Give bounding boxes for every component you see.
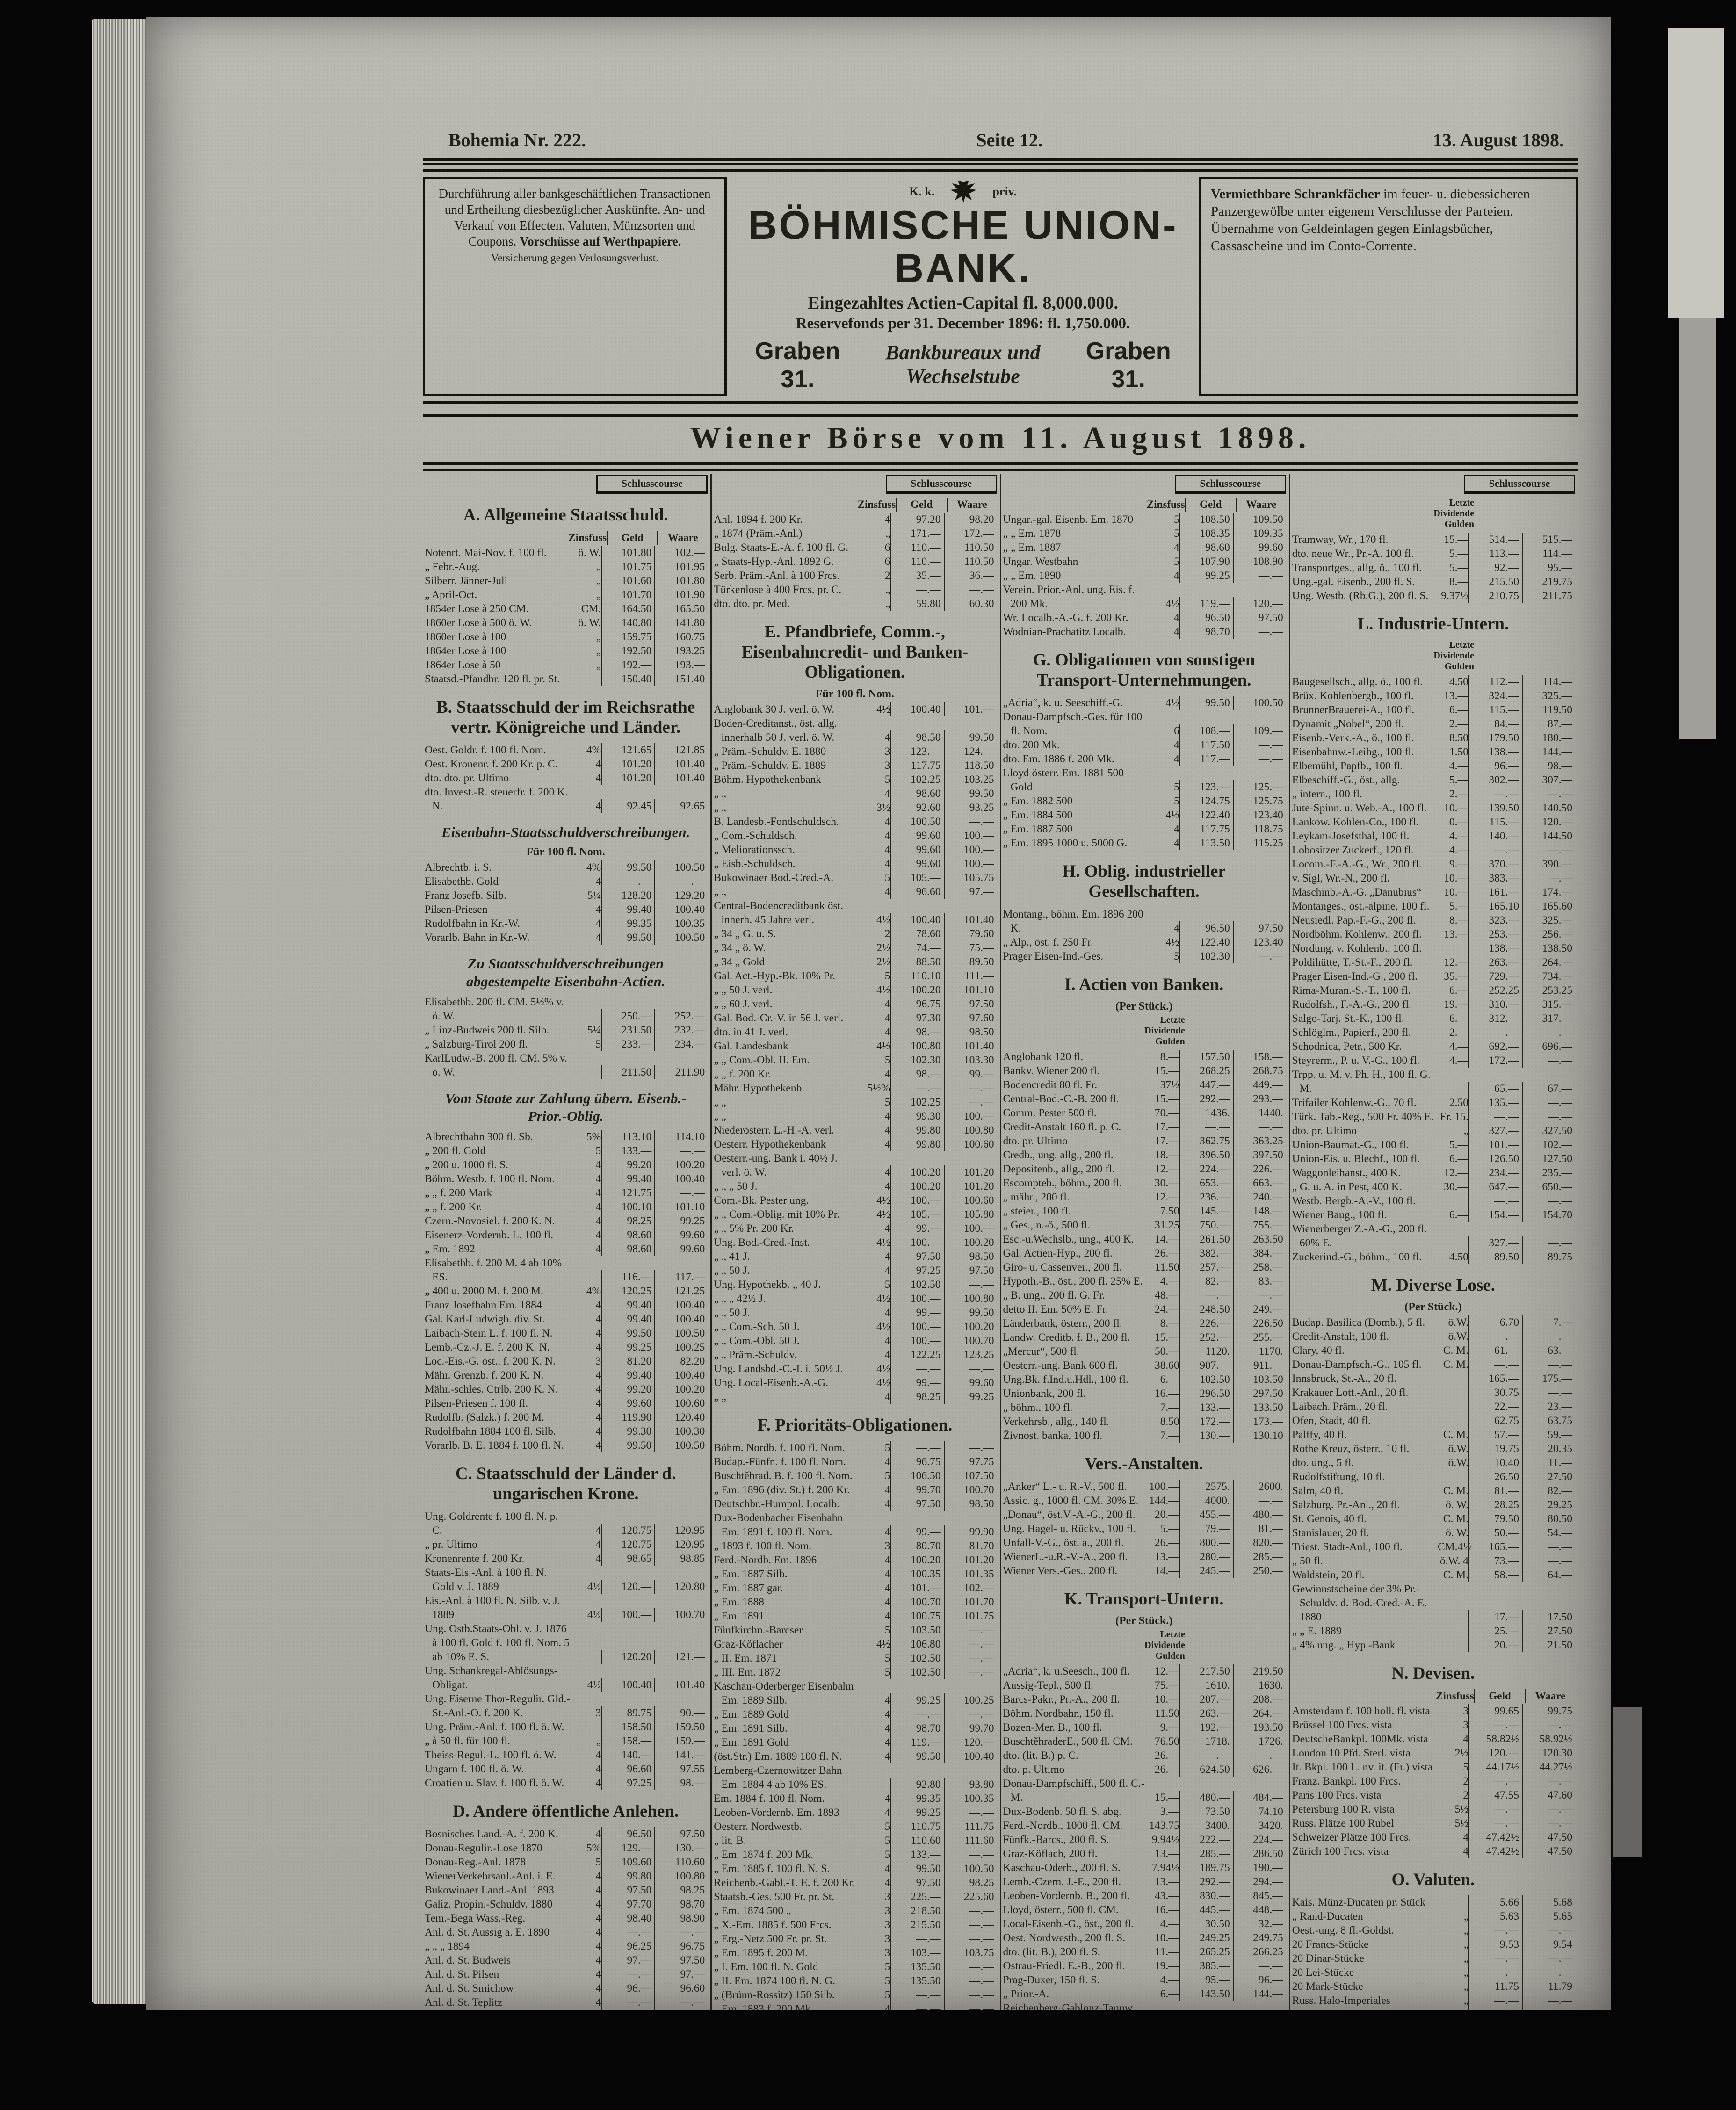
waare-value: 159.—: [654, 1734, 708, 1748]
interest-or-dividend: 5: [860, 1848, 890, 1862]
waare-value: —.—: [944, 1637, 997, 1651]
geld-value: 192.—: [1179, 1720, 1233, 1734]
interest-or-dividend: 4: [1149, 569, 1179, 583]
waare-value: 80.50: [1522, 1512, 1575, 1526]
waare-value: 54.—: [1522, 1526, 1575, 1540]
geld-value: 17.—: [1468, 1610, 1522, 1624]
security-name: Salgo-Tarj. St.-K., 100 fl.: [1299, 1012, 1438, 1026]
security-name: „ „ „ 1894: [431, 1939, 570, 1953]
waare-value: 158.—: [1233, 1050, 1286, 1064]
security-name: „ „ Com.-Oblig. mit 10% Pr.: [720, 1207, 859, 1221]
table-row: Triest499.50100.45: [424, 2009, 708, 2010]
bank-capital: Eingezahltes Actien-Capital fl. 8,000.00…: [739, 293, 1187, 313]
interest-or-dividend: CM.4½: [1438, 1540, 1468, 1554]
geld-value: 97.50: [890, 1250, 944, 1264]
table-row: Anl. d. St. Aussig a. E. 18904—.——.—: [424, 1925, 708, 1939]
security-name: Živnost. banka, 100 fl.: [1010, 1429, 1149, 1443]
table-row: Esc.-u.Wechslb., ung., 400 K.14.—261.502…: [1002, 1232, 1286, 1246]
waare-value: 173.—: [1233, 1415, 1286, 1429]
interest-or-dividend: 4½: [860, 1292, 890, 1306]
table-row: Lemb.-Czern. J.-E., 200 fl.13.—292.—294.…: [1002, 1875, 1286, 1889]
security-name: „ Em. 1883 f. 200 Mk.: [720, 2002, 859, 2010]
waare-value: 101.90: [654, 588, 708, 602]
table-row: Laibach-Stein L. f. 100 fl. N.499.50100.…: [424, 1326, 708, 1340]
waare-value: 100.35: [654, 917, 708, 931]
waare-value: 130.10: [1233, 1429, 1286, 1443]
security-name: Staatsb.-Ges. 500 Fr. pr. St.: [720, 1890, 859, 1904]
waare-value: 63.75: [1522, 1414, 1575, 1428]
waare-value: —.—: [1233, 569, 1286, 583]
security-name: Oesterr.-ung. Bank 600 fl.: [1010, 1358, 1149, 1373]
security-name: „ „ f. 200 Kr.: [431, 1200, 570, 1214]
security-name: „ „: [720, 1390, 859, 1404]
geld-value: 250.—: [601, 1009, 654, 1023]
waare-value: 363.25: [1233, 1134, 1286, 1148]
waare-value: 325.—: [1522, 913, 1575, 927]
security-name: Bulg. Staats-E.-A. f. 100 fl. G.: [720, 541, 859, 555]
waare-value: 92.65: [654, 799, 708, 813]
security-name: Palffy, 40 fl.: [1299, 1428, 1438, 1442]
table-row: „ 1893 f. 100 fl. Nom.380.7081.70: [713, 1539, 997, 1553]
interest-or-dividend: 5: [860, 1441, 890, 1455]
waare-value: 117.—: [654, 1270, 708, 1284]
priv-label: priv.: [992, 185, 1016, 199]
interest-or-dividend: 2.—: [1438, 717, 1468, 731]
waare-value: 96.—: [1233, 1973, 1286, 1987]
table-row: St. Genois, 40 fl.C. M.79.5080.50: [1291, 1512, 1575, 1526]
waare-value: 99.60: [654, 1228, 708, 1242]
geld-value: 102.30: [890, 1053, 944, 1067]
table-row: Transportges., allg. ö., 100 fl.5.—92.—9…: [1291, 561, 1575, 575]
security-name: „ G. u. A. in Pest, 400 K.: [1299, 1180, 1438, 1194]
geld-value: —.—: [1468, 1951, 1522, 1965]
waare-value: —.—: [944, 1665, 997, 1679]
table-row: Petersburg 100 R. vista5½—.——.—: [1291, 1802, 1575, 1816]
table-row: Bozen-Mer. B., 100 fl.9.—192.—193.50: [1002, 1720, 1286, 1734]
waare-value: 99.75: [1522, 1704, 1575, 1718]
waare-value: 21.50: [1522, 1638, 1575, 1652]
waare-value: 100.50: [654, 860, 708, 874]
waare-value: 119.50: [1522, 703, 1575, 717]
table-row: dto. Em. 1886 f. 200 Mk.4117.——.—: [1002, 752, 1286, 766]
interest-or-dividend: 3: [1438, 1718, 1468, 1732]
waare-value: 100.60: [944, 1137, 997, 1151]
interest-or-dividend: 2½: [860, 941, 890, 955]
waare-value: —.—: [1522, 1965, 1575, 1980]
table-row: KarlLudw.-B. 200 fl. CM. 5% v. ö. W.211.…: [424, 1051, 708, 1079]
interest-or-dividend: 5%: [570, 1841, 601, 1855]
waare-value: 174.—: [1522, 885, 1575, 899]
table-row: Lloyd, österr., 500 fl. CM.16.—445.—448.…: [1002, 1903, 1286, 1917]
interest-or-dividend: 3: [1438, 1704, 1468, 1718]
waare-value: 101.20: [944, 1553, 997, 1567]
interest-or-dividend: 13.—: [1438, 689, 1468, 703]
waare-value: —.—: [1522, 1236, 1575, 1250]
security-name: Oest. Goldr. f. 100 fl. Nom.: [431, 743, 570, 757]
waare-value: 255.—: [1233, 1330, 1286, 1344]
geld-value: 101.20: [601, 771, 654, 785]
security-name: „ Em. 1891: [720, 1609, 859, 1623]
waare-value: 100.40: [654, 903, 708, 917]
geld-value: 211.50: [601, 1065, 654, 1079]
security-name: „Donau“, öst.V.-A.-G., 200 fl.: [1010, 1508, 1149, 1522]
interest-or-dividend: 4: [1149, 822, 1179, 836]
waare-value: 165.60: [1522, 899, 1575, 913]
waare-value: 258.—: [1233, 1260, 1286, 1274]
interest-or-dividend: 4: [570, 1200, 601, 1214]
table-row: Amsterdam f. 100 holl. fl. vista399.6599…: [1291, 1704, 1575, 1718]
geld-value: 78.60: [890, 927, 944, 941]
security-name: „ pr. Ultimo: [431, 1538, 570, 1552]
waare-value: 97.50: [944, 1264, 997, 1278]
waare-value: 47.50: [1522, 1844, 1575, 1858]
geld-value: 96.60: [890, 885, 944, 899]
table-row: Anglobank 30 J. verl. ö. W.4½100.40101.—: [713, 702, 997, 716]
security-name: 20 Dinar-Stücke: [1299, 1951, 1438, 1965]
geld-value: —.—: [1179, 1120, 1233, 1134]
security-name: It. Bkpl. 100 L. nv. it. (Fr.) vista: [1299, 1760, 1438, 1774]
schlusscourse-header-row: Schlusscourse: [424, 475, 708, 494]
table-row: „ Em. 1874 500 „3218.50—.—: [713, 1904, 997, 1918]
security-name: dto. pr. Ultimo: [1299, 1124, 1438, 1138]
security-name: Kais. Münz-Ducaten pr. Stück: [1299, 1895, 1438, 1909]
section-heading: O. Valuten.: [1294, 1870, 1572, 1890]
waare-value: 219.75: [1522, 575, 1575, 589]
security-name: Eisenb.-Verk.-A., ö., 100 fl.: [1299, 731, 1438, 745]
table-row: „ Em. 1887 gar.4101.—102.—: [713, 1581, 997, 1595]
table-row: Prager Eisen-Ind.-G., 200 fl.35.—729.—73…: [1291, 969, 1575, 983]
geld-value: 245.—: [1179, 1564, 1233, 1578]
security-name: Wr. Localb.-A.-G. f. 200 Kr.: [1010, 611, 1149, 625]
geld-value: 312.—: [1468, 1012, 1522, 1026]
table-row: Elbemühl, Papfb., 100 fl.4.—96.—98.—: [1291, 759, 1575, 773]
waare-value: —.—: [654, 1144, 708, 1158]
security-name: „ „ E. 1889: [1299, 1624, 1438, 1638]
security-name: Ostrau-Friedl. E.-B., 200 fl.: [1010, 1959, 1149, 1973]
geld-value: 126.50: [1468, 1152, 1522, 1166]
table-row: „ 200 fl. Gold5133.——.—: [424, 1144, 708, 1158]
interest-or-dividend: 4½: [860, 1207, 890, 1221]
table-row: Anglobank 120 fl.8.—157.50158.—: [1002, 1050, 1286, 1064]
waare-value: 99.25: [654, 1214, 708, 1228]
section-heading: C. Staatsschuld der Länder d. ungarische…: [427, 1464, 705, 1504]
geld-value: 120.—: [601, 1580, 654, 1594]
geld-value: 222.—: [1179, 1833, 1233, 1847]
interest-or-dividend: „: [570, 574, 601, 588]
table-row: Wiener Baug., 100 fl.6.—154.—154.70: [1291, 1208, 1575, 1222]
waare-value: 151.40: [654, 672, 708, 686]
waare-value: 755.—: [1233, 1218, 1286, 1232]
geld-value: 248.50: [1179, 1302, 1233, 1316]
table-row: Rima-Muran.-S.-T., 100 fl.6.—252.25253.2…: [1291, 983, 1575, 997]
section-heading: K. Transport-Untern.: [1005, 1589, 1283, 1609]
waare-value: 101.40: [944, 913, 997, 927]
security-name: Lloyd, österr., 500 fl. CM.: [1010, 1903, 1149, 1917]
geld-value: 44.17½: [1468, 1760, 1522, 1774]
table-row: „ (Brünn-Rossitz) 150 Silb.5—.——.—: [713, 1988, 997, 2002]
security-name: Central-Bodencreditbank öst. innerh. 45 …: [720, 899, 859, 927]
waare-value: 384.—: [1233, 1246, 1286, 1260]
security-name: Eisenerz-Vordernb. L. 100 fl.: [431, 1228, 570, 1242]
geld-value: 653.—: [1179, 1176, 1233, 1190]
table-row: Verein. Prior.-Anl. ung. Eis. f. 200 Mk.…: [1002, 583, 1286, 611]
table-row: Nordung. v. Kohlenb., 100 fl.138.—138.50: [1291, 941, 1575, 955]
table-row: Salzburg. Pr.-Anl., 20 fl.ö. W.28.2529.2…: [1291, 1498, 1575, 1512]
security-name: Innsbruck, St.-A., 20 fl.: [1299, 1372, 1438, 1386]
geld-value: 98.60: [1179, 541, 1233, 555]
table-row: „ Ges., n.-ö., 500 fl.31.25750.—755.—: [1002, 1218, 1286, 1232]
geld-value: 79.50: [1468, 1512, 1522, 1526]
table-row: „ „ Com.-Obl. II. Em.5102.30103.30: [713, 1053, 997, 1067]
security-name: Bukowinaer Bod.-Cred.-A.: [720, 871, 859, 885]
table-row: Fünfkirchn.-Barcser5103.50—.—: [713, 1623, 997, 1637]
interest-or-dividend: „: [1438, 2008, 1468, 2010]
security-name: Assic. g., 1000 fl. CM. 30% E.: [1010, 1494, 1149, 1508]
bank-name: BÖHMISCHE UNION-BANK.: [739, 204, 1187, 290]
security-name: „ „ „ 42½ J.: [720, 1292, 859, 1306]
security-name: „ mähr., 200 fl.: [1010, 1190, 1149, 1204]
interest-or-dividend: „: [570, 560, 601, 574]
waare-value: 120.—: [1522, 815, 1575, 829]
table-row: dto. Invest.-R. steuerfr. f. 200 K. N.49…: [424, 785, 708, 813]
interest-or-dividend: 4: [570, 1925, 601, 1939]
security-name: Graz-Köflach, 200 fl.: [1010, 1847, 1149, 1861]
security-name: Ungar. Westbahn: [1010, 555, 1149, 569]
table-row: dto. in 41 J. verl.498.—98.50: [713, 1025, 997, 1039]
geld-value: 99.20: [601, 1158, 654, 1172]
table-row: 20 Francs-Stücke„9.539.54: [1291, 1937, 1575, 1951]
security-name: Prager Eisen-Ind.-G., 200 fl.: [1299, 969, 1438, 983]
security-name: „ „: [720, 787, 859, 801]
table-row: Waldstein, 20 fl.C. M.58.—64.—: [1291, 1568, 1575, 1582]
waare-value: 114.—: [1522, 675, 1575, 689]
interest-or-dividend: 4: [570, 1410, 601, 1424]
security-name: Reichenberg-Gablonz-Tannw. Eisenb.-Prior…: [1010, 2001, 1149, 2010]
interest-or-dividend: 5: [860, 1820, 890, 1834]
waare-value: 144.50: [1522, 829, 1575, 843]
interest-or-dividend: C. M.: [1438, 1568, 1468, 1582]
geld-value: 99.50: [601, 931, 654, 945]
waare-value: 101.40: [654, 771, 708, 785]
security-name: Ferd.-Nordb. Em. 1896: [720, 1553, 859, 1567]
interest-or-dividend: 5: [860, 1278, 890, 1292]
waare-value: 390.—: [1522, 857, 1575, 871]
waare-value: 110.50: [944, 555, 997, 569]
geld-value: 92.80: [890, 1778, 944, 1792]
security-name: „ 34 „ G. u. S.: [720, 927, 859, 941]
geld-value: 154.—: [1468, 1208, 1522, 1222]
security-name: „ Com.-Schuldsch.: [720, 829, 859, 843]
ad-center-box: K. k. priv. BÖHMISCHE UNION-BANK. Eingez…: [734, 177, 1192, 396]
table-row: Locom.-F.-A.-G., Wr., 200 fl.9.—370.—390…: [1291, 857, 1575, 871]
security-name: Gal. Actien-Hyp., 200 fl.: [1010, 1246, 1149, 1260]
geld-value: —.—: [1468, 843, 1522, 857]
interest-or-dividend: 4: [1438, 1844, 1468, 1858]
security-name: Wiener Baug., 100 fl.: [1299, 1208, 1438, 1222]
waare-value: 820.—: [1233, 1536, 1286, 1550]
interest-or-dividend: 5: [570, 1037, 601, 1051]
security-name: Bukowinaer Land.-Anl. 1893: [431, 1883, 570, 1897]
table-row: Donau-Dampfsch.-Ges. für 100 fl. Nom.610…: [1002, 710, 1286, 738]
security-name: Waggonleihanst., 400 K.: [1299, 1166, 1438, 1180]
table-row: Aussig-Tepl., 500 fl.75.—1610.1630.: [1002, 1678, 1286, 1692]
security-name: Rudolfsh., F.-A.-G., 200 fl.: [1299, 997, 1438, 1012]
subsection-heading: Vom Staate zur Zahlung übern. Eisenb.-Pr…: [426, 1090, 706, 1125]
waare-value: 101.35: [944, 1567, 997, 1581]
security-name: Verein. Prior.-Anl. ung. Eis. f. 200 Mk.: [1010, 583, 1149, 611]
table-row: Ungar. Westbahn5107.90108.90: [1002, 555, 1286, 569]
geld-value: 117.75: [1179, 822, 1233, 836]
table-row: Innsbruck, St.-A., 20 fl.165.—175.—: [1291, 1372, 1575, 1386]
table-row: Eisenerz-Vordernb. L. 100 fl.498.6099.60: [424, 1228, 708, 1242]
table-row: Credit-Anstalt 160 fl. p. C.17.——.——.—: [1002, 1120, 1286, 1134]
table-row: Türkenlose à 400 Frcs. pr. C.„—.——.—: [713, 583, 997, 597]
geld-value: 99.80: [601, 1869, 654, 1883]
geld-value: —.—: [890, 1081, 944, 1095]
geld-value: 99.60: [890, 829, 944, 843]
column-header-row: ZinsfussGeldWaare: [1002, 498, 1286, 512]
geld-value: 120.20: [601, 1650, 654, 1664]
security-name: „ „ Em. 1878: [1010, 527, 1149, 541]
interest-or-dividend: 2: [1438, 1774, 1468, 1788]
security-name: „ Em. 1874 500 „: [720, 1904, 859, 1918]
interest-or-dividend: 4½: [860, 702, 890, 716]
table-row: Staatsd.-Pfandbr. 120 fl. pr. St.150.401…: [424, 672, 708, 686]
interest-or-dividend: 4.50: [1438, 1250, 1468, 1264]
security-name: „ „ „ 50 J.: [720, 1179, 859, 1193]
table-row: Maschinb.-A.-G. „Danubius“10.—161.—174.—: [1291, 885, 1575, 899]
interest-or-dividend: 4: [570, 1883, 601, 1897]
waare-value: 97.50: [1233, 611, 1286, 625]
security-name: dto. p. Ultimo: [1010, 1763, 1149, 1777]
security-name: „ 34 „ ö. W.: [720, 941, 859, 955]
table-row: Salm, 40 fl.C. M.81.—82.—: [1291, 1484, 1575, 1498]
geld-value: 5.66: [1468, 1895, 1522, 1909]
table-row: Union-Baumat.-G., 100 fl.5.—101.—102.—: [1291, 1138, 1575, 1152]
section-heading: B. Staatsschuld der im Reichsrathe vertr…: [427, 697, 705, 737]
interest-or-dividend: „: [860, 597, 890, 611]
table-row: „ „ Com.-Sch. 50 J.4½100.—100.20: [713, 1320, 997, 1334]
interest-or-dividend: 4: [860, 1862, 890, 1876]
table-row: Poldihütte, T.-St.-F., 200 fl.12.—263.—2…: [1291, 955, 1575, 969]
security-name: Credb., ung. allg., 200 fl.: [1010, 1148, 1149, 1162]
interest-or-dividend: 48.—: [1149, 1288, 1179, 1302]
table-row: Unfall-V.-G., öst. a., 200 fl.26.—800.—8…: [1002, 1536, 1286, 1550]
geld-value: —.—: [890, 1932, 944, 1946]
table-row: 20 Lei-Stücke„—.——.—: [1291, 1965, 1575, 1980]
table-row: Trpp. u. M. v. Ph. H., 100 fl. G. M.65.—…: [1291, 1068, 1575, 1096]
table-row: „ Em. 1891 Gold4119.—120.—: [713, 1735, 997, 1749]
table-row: Bodencredit 80 fl. Fr.37½447.—449.—: [1002, 1078, 1286, 1092]
security-name: Pilsen-Priesen: [431, 903, 570, 917]
interest-or-dividend: 4: [860, 1137, 890, 1151]
security-name: Ung. Ostb.Staats-Obl. v. J. 1876 à 100 f…: [431, 1622, 570, 1664]
table-row: Donau-Dampfsch.-G., 105 fl.C. M.—.——.—: [1291, 1358, 1575, 1372]
security-name: „ steier., 100 fl.: [1010, 1204, 1149, 1218]
geld-value: 62.75: [1468, 1414, 1522, 1428]
geld-value: 113.10: [601, 1130, 654, 1144]
security-name: Ung. Präm.-Anl. f. 100 fl. ö. W.: [431, 1720, 570, 1734]
geld-value: 159.75: [601, 630, 654, 644]
waare-value: 89.50: [944, 955, 997, 969]
table-row: Leykam-Josefsthal, 100 fl.4.—140.—144.50: [1291, 829, 1575, 843]
waare-value: 180.—: [1522, 731, 1575, 745]
table-row: „ Präm.-Schuldv. E. 18803123.—124.—: [713, 744, 997, 759]
geld-value: 172.—: [1468, 1054, 1522, 1068]
waare-value: 64.—: [1522, 1568, 1575, 1582]
security-name: Böhm. Nordb. f. 100 fl. Nom.: [720, 1441, 859, 1455]
geld-value: 101.60: [601, 574, 654, 588]
geld-value: 100.40: [601, 1678, 654, 1692]
table-row: Donau-Dampfschiff., 500 fl. C.-M.15.—480…: [1002, 1777, 1286, 1805]
table-row: „Mercur“, 500 fl.50.—1120.1170.: [1002, 1344, 1286, 1358]
security-name: Leykam-Josefsthal, 100 fl.: [1299, 829, 1438, 843]
interest-or-dividend: 35.—: [1438, 969, 1468, 983]
interest-or-dividend: CM.: [570, 602, 601, 616]
section-heading: F. Prioritäts-Obligationen.: [716, 1415, 994, 1435]
interest-or-dividend: C. M.: [1438, 1344, 1468, 1358]
interest-or-dividend: 4½: [1149, 808, 1179, 822]
table-row: Steyrerm., P. u. V.-G., 100 fl.4.—172.——…: [1291, 1054, 1575, 1068]
security-name: Böhm. Westb. f. 100 fl. Nom.: [431, 1172, 570, 1186]
waare-value: 102.—: [1522, 1138, 1575, 1152]
table-row: Wodnian-Prachatitz Localb.498.70—.—: [1002, 625, 1286, 639]
waare-value: —.—: [944, 1095, 997, 1109]
interest-or-dividend: 4: [1149, 836, 1179, 850]
interest-or-dividend: 18.—: [1149, 1148, 1179, 1162]
interest-or-dividend: 20.—: [1149, 1508, 1179, 1522]
security-name: „Mercur“, 500 fl.: [1010, 1344, 1149, 1358]
interest-or-dividend: 4: [860, 1707, 890, 1721]
waare-value: —.—: [944, 1362, 997, 1376]
security-name: Albrechtb. i. S.: [431, 860, 570, 874]
section-heading: E. Pfandbriefe, Comm.-, Eisenbahncredit-…: [716, 622, 994, 682]
geld-value: 800.—: [1179, 1536, 1233, 1550]
interest-or-dividend: 4: [860, 1749, 890, 1763]
security-name: Bozen-Mer. B., 100 fl.: [1010, 1720, 1149, 1734]
waare-value: 103.50: [1233, 1373, 1286, 1387]
interest-or-dividend: 5.—: [1149, 1522, 1179, 1536]
table-row: Mähr.-schles. Ctrlb. 200 K. N.499.20100.…: [424, 1382, 708, 1396]
geld-value: 121.65: [601, 743, 654, 757]
waare-value: 99.25: [944, 1390, 997, 1404]
security-name: Esc.-u.Wechslb., ung., 400 K.: [1010, 1232, 1149, 1246]
geld-value: 292.—: [1179, 1092, 1233, 1106]
geld-value: 1120.: [1179, 1344, 1233, 1358]
waare-value: 696.—: [1522, 1040, 1575, 1054]
geld-value: 115.—: [1468, 815, 1522, 829]
waare-value: 141.80: [654, 616, 708, 630]
interest-or-dividend: 5.—: [1438, 1138, 1468, 1152]
table-row: „ X.-Em. 1885 f. 500 Frcs.3215.50—.—: [713, 1918, 997, 1932]
interest-or-dividend: 4½: [860, 913, 890, 927]
geld-value: 370.—: [1468, 857, 1522, 871]
interest-or-dividend: 4: [570, 1995, 601, 2009]
table-row: Gewinnstscheine der 3% Pr.-Schuldv. d. B…: [1291, 1582, 1575, 1624]
geld-value: —.—: [1468, 787, 1522, 801]
security-name: Lemb.-Cz.-J. E. f. 200 K. N.: [431, 1340, 570, 1354]
table-row: dto. ung., 5 fl.ö.W.10.4011.—: [1291, 1456, 1575, 1470]
interest-or-dividend: 15.—: [1149, 1092, 1179, 1106]
geld-value: 140.—: [1468, 829, 1522, 843]
geld-value: 215.50: [890, 1918, 944, 1932]
table-row: Oest. Goldr. f. 100 fl. Nom.4%121.65121.…: [424, 743, 708, 757]
security-name: Ungarn f. 100 fl. ö. W.: [431, 1762, 570, 1776]
waare-value: —.—: [1522, 1026, 1575, 1040]
interest-or-dividend: 3: [570, 1354, 601, 1368]
geld-value: 100.—: [890, 1334, 944, 1348]
geld-value: 100.75: [890, 1609, 944, 1623]
